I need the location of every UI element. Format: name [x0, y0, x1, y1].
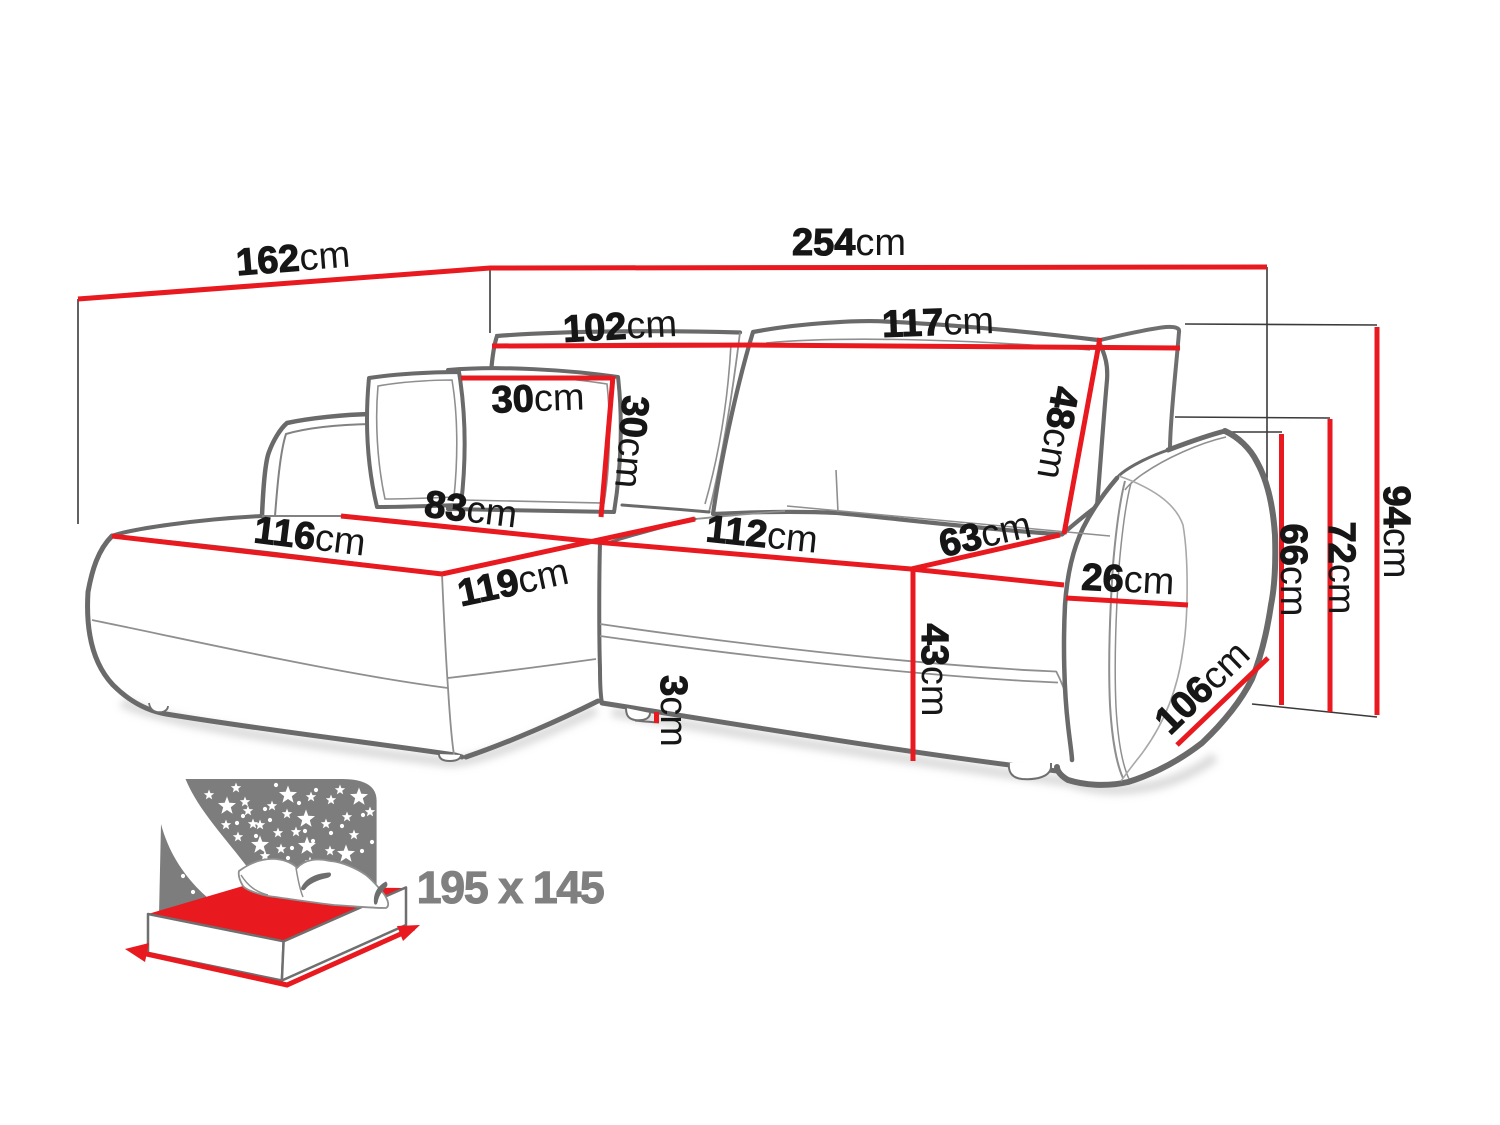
svg-text:66cm: 66cm [1272, 524, 1314, 617]
svg-text:102cm: 102cm [562, 303, 678, 351]
svg-text:254cm: 254cm [792, 222, 906, 264]
svg-text:30cm: 30cm [606, 394, 656, 490]
svg-text:162cm: 162cm [235, 234, 352, 285]
svg-text:94cm: 94cm [1375, 486, 1417, 579]
svg-text:195 x 145: 195 x 145 [417, 862, 604, 913]
svg-text:30cm: 30cm [491, 376, 585, 421]
svg-text:117cm: 117cm [881, 300, 994, 346]
svg-text:3cm: 3cm [652, 675, 694, 747]
svg-text:43cm: 43cm [913, 624, 955, 717]
svg-text:72cm: 72cm [1320, 522, 1362, 615]
svg-text:26cm: 26cm [1080, 557, 1175, 604]
